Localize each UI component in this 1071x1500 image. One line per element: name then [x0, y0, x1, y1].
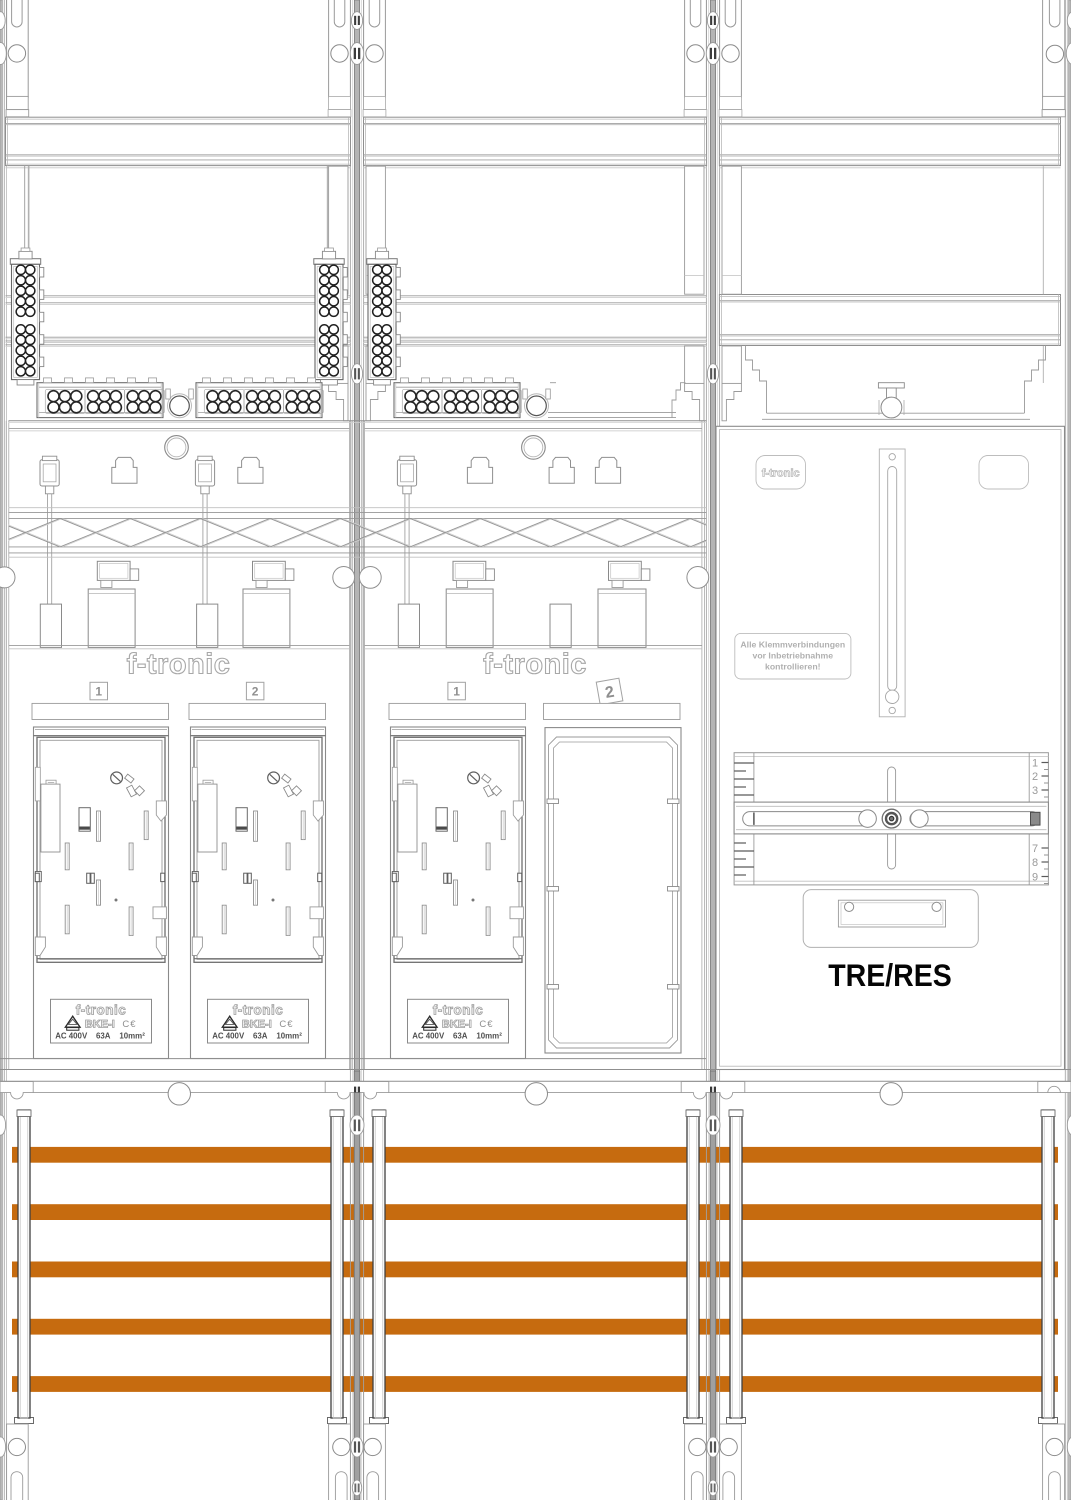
svg-text:2: 2: [252, 684, 259, 698]
svg-text:63A: 63A: [453, 1032, 468, 1041]
svg-text:BKE-I: BKE-I: [442, 1019, 472, 1031]
svg-text:7: 7: [1032, 843, 1038, 855]
svg-text:vor Inbetriebnahme: vor Inbetriebnahme: [752, 651, 833, 661]
svg-text:AC 400V: AC 400V: [212, 1032, 245, 1041]
svg-text:3: 3: [1032, 785, 1038, 797]
svg-text:f-tronic: f-tronic: [433, 1003, 484, 1018]
svg-text:f-tronic: f-tronic: [233, 1003, 284, 1018]
svg-text:C€: C€: [479, 1019, 493, 1030]
svg-text:1: 1: [95, 684, 102, 698]
svg-text:1: 1: [1032, 758, 1038, 770]
svg-text:AC 400V: AC 400V: [412, 1032, 445, 1041]
svg-text:C€: C€: [279, 1019, 293, 1030]
svg-text:9: 9: [1032, 872, 1038, 884]
svg-text:f-tronic: f-tronic: [76, 1003, 127, 1018]
svg-text:kontrollieren!: kontrollieren!: [765, 662, 821, 672]
svg-text:f-tronic: f-tronic: [127, 649, 231, 681]
svg-text:Alle Klemmverbindungen: Alle Klemmverbindungen: [740, 640, 845, 650]
svg-text:BKE-I: BKE-I: [85, 1019, 115, 1031]
svg-text:10mm²: 10mm²: [119, 1032, 145, 1041]
svg-text:10mm²: 10mm²: [476, 1032, 502, 1041]
svg-text:10mm²: 10mm²: [276, 1032, 302, 1041]
svg-text:63A: 63A: [96, 1032, 111, 1041]
svg-text:BKE-I: BKE-I: [242, 1019, 272, 1031]
svg-text:1: 1: [453, 684, 460, 698]
svg-text:TRE/RES: TRE/RES: [828, 957, 952, 993]
svg-text:f-tronic: f-tronic: [762, 468, 800, 480]
svg-text:63A: 63A: [253, 1032, 268, 1041]
svg-text:C€: C€: [122, 1019, 136, 1030]
svg-text:2: 2: [1032, 771, 1038, 783]
svg-text:AC 400V: AC 400V: [55, 1032, 88, 1041]
svg-text:f-tronic: f-tronic: [483, 649, 587, 681]
svg-text:8: 8: [1032, 857, 1038, 869]
